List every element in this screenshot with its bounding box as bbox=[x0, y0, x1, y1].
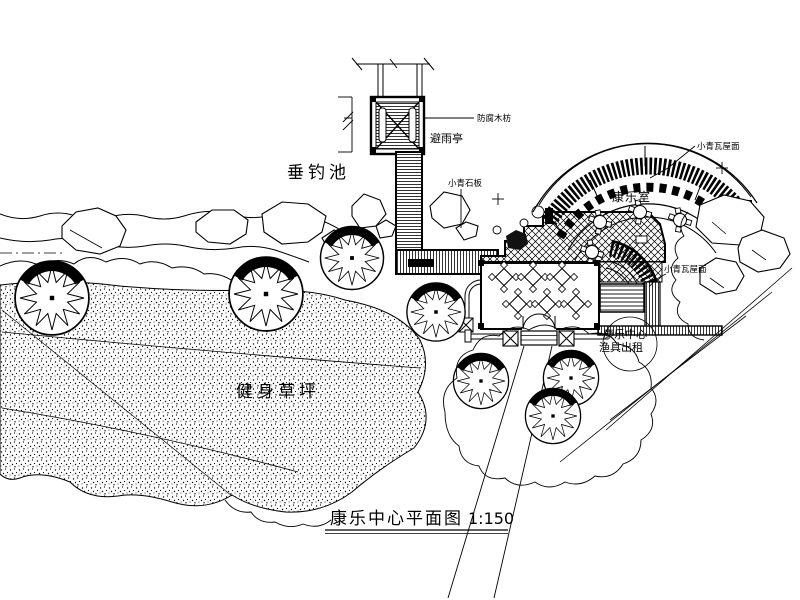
entry-porch bbox=[465, 330, 608, 346]
hall-label: 康乐室 bbox=[612, 189, 651, 204]
plank-bridge bbox=[396, 152, 422, 256]
lawn-label: 健身草坪 bbox=[236, 382, 320, 402]
tree bbox=[229, 257, 303, 331]
rain-shelter-pavilion bbox=[338, 58, 434, 154]
pond-label: 垂钓池 bbox=[287, 163, 350, 183]
pavilion-bench-right bbox=[409, 108, 416, 142]
center-name-label: 康乐中心 bbox=[603, 327, 647, 341]
room-left-railing bbox=[465, 280, 481, 318]
pavilion-note-label: 防腐木枋 bbox=[477, 113, 512, 124]
plan-title: 康乐中心平面图 bbox=[330, 509, 463, 529]
tree bbox=[321, 226, 384, 289]
boardwalk-bench bbox=[408, 259, 434, 267]
tree bbox=[453, 353, 508, 408]
center-service-label: 渔具出租 bbox=[599, 340, 643, 354]
plaza-rock bbox=[520, 219, 528, 227]
plaza-rock bbox=[493, 226, 501, 234]
activity-room bbox=[459, 260, 600, 332]
site-plan-drawing: 垂钓池 健身草坪 避雨亭 防腐木枋 小青石板 康乐室 小青瓦屋面 小青瓦屋面 康… bbox=[0, 0, 800, 600]
roof-note-upper-label: 小青瓦屋面 bbox=[697, 141, 740, 152]
pavilion-dimension bbox=[338, 97, 353, 152]
title-block: 康乐中心平面图 1:150 bbox=[325, 509, 514, 534]
paving-note-label: 小青石板 bbox=[448, 178, 483, 189]
pavilion-label: 避雨亭 bbox=[430, 131, 463, 145]
pavilion-bench-left bbox=[379, 108, 386, 142]
tree bbox=[407, 283, 465, 341]
tree bbox=[15, 261, 89, 335]
plan-canvas: 垂钓池 健身草坪 避雨亭 防腐木枋 小青石板 康乐室 小青瓦屋面 小青瓦屋面 康… bbox=[0, 0, 800, 600]
plan-scale: 1:150 bbox=[468, 509, 514, 528]
tree bbox=[525, 388, 580, 443]
pavilion-trellis bbox=[352, 58, 434, 97]
porch-planter-right bbox=[559, 331, 574, 346]
survey-cross bbox=[492, 193, 504, 205]
roof-note-lower-label: 小青瓦屋面 bbox=[664, 264, 707, 275]
porch-planter-left bbox=[503, 331, 518, 346]
